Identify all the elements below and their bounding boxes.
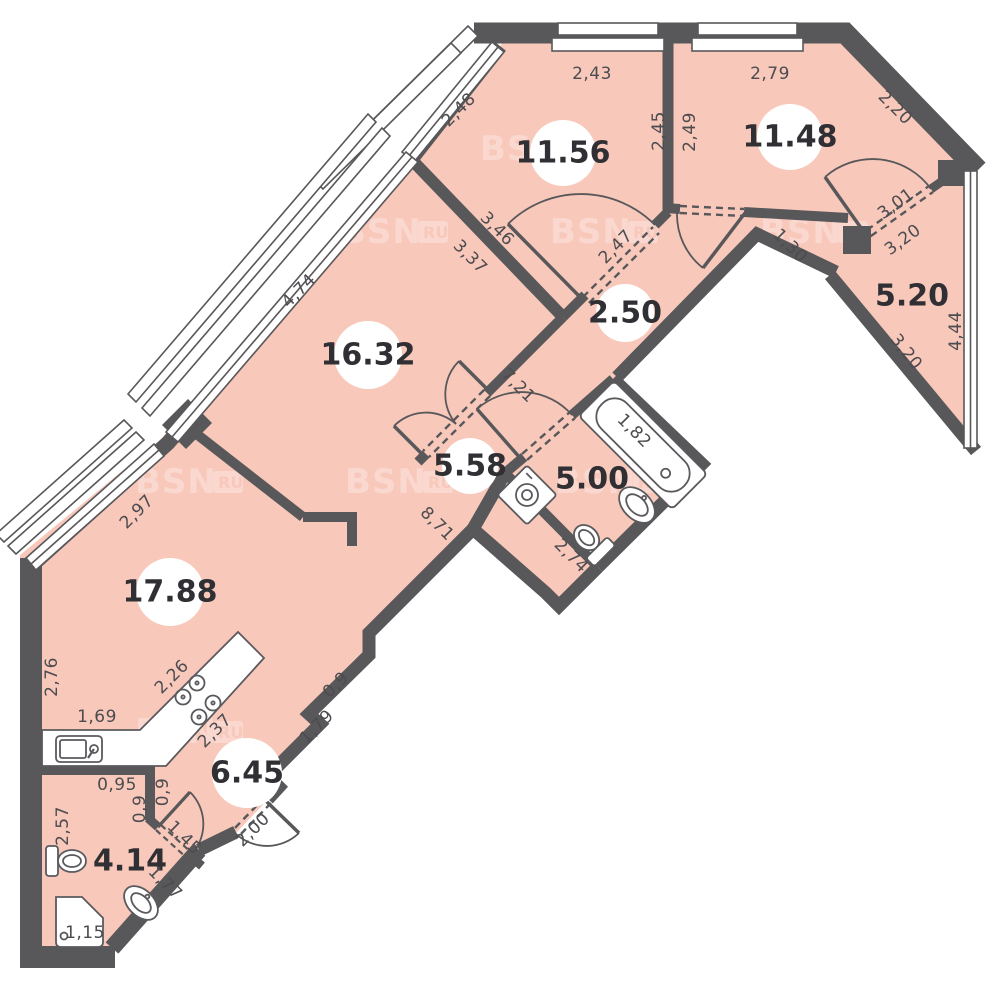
svg-text:BSN: BSN [345, 462, 427, 502]
hall-558-area-label: 5.58 [433, 449, 507, 484]
dimension-label: 0,9 [153, 778, 173, 807]
room-1156-area-label: 11.56 [516, 136, 611, 171]
floor-plan-page: BSNRUBSNRUBSNRUBSNRUBSNRUBSNRUBSNRUBSNRU [0, 0, 1000, 1000]
svg-text:RU: RU [423, 223, 448, 242]
dimension-label: 2,49 [680, 112, 700, 152]
hall-250-area-label: 2.50 [588, 296, 662, 331]
dimension-label: 2,45 [649, 111, 669, 151]
floor-plan-canvas: BSNRUBSNRUBSNRUBSNRUBSNRUBSNRUBSNRUBSNRU [0, 0, 1000, 1000]
window-top-1148-inner [692, 38, 803, 51]
dimension-label: 2,79 [750, 64, 790, 84]
dimension-label: 2,76 [42, 657, 62, 697]
room-1148-area-label: 11.48 [743, 120, 838, 155]
window-top-1156-outer [558, 23, 658, 35]
dimension-label: 0,9 [130, 795, 150, 824]
window-top-1156-inner [552, 38, 664, 51]
room-520-area-label: 5.20 [875, 279, 949, 314]
window-right-444 [964, 171, 977, 448]
svg-text:RU: RU [633, 223, 658, 242]
dimension-label: 0,95 [97, 775, 137, 795]
dimension-label: 2,43 [572, 64, 612, 84]
dimension-label: 1,69 [77, 707, 117, 727]
window-top-1148-outer [698, 23, 797, 35]
room-1632-area-label: 16.32 [321, 338, 416, 373]
room-1788-area-label: 17.88 [123, 575, 218, 610]
dimension-label: 4,44 [946, 311, 966, 351]
bath-500-area-label: 5.00 [555, 462, 629, 497]
svg-text:RU: RU [218, 473, 243, 492]
dimension-label: 1,15 [65, 923, 105, 943]
hall-645-area-label: 6.45 [210, 756, 284, 791]
dimension-label: 2,57 [53, 806, 73, 846]
